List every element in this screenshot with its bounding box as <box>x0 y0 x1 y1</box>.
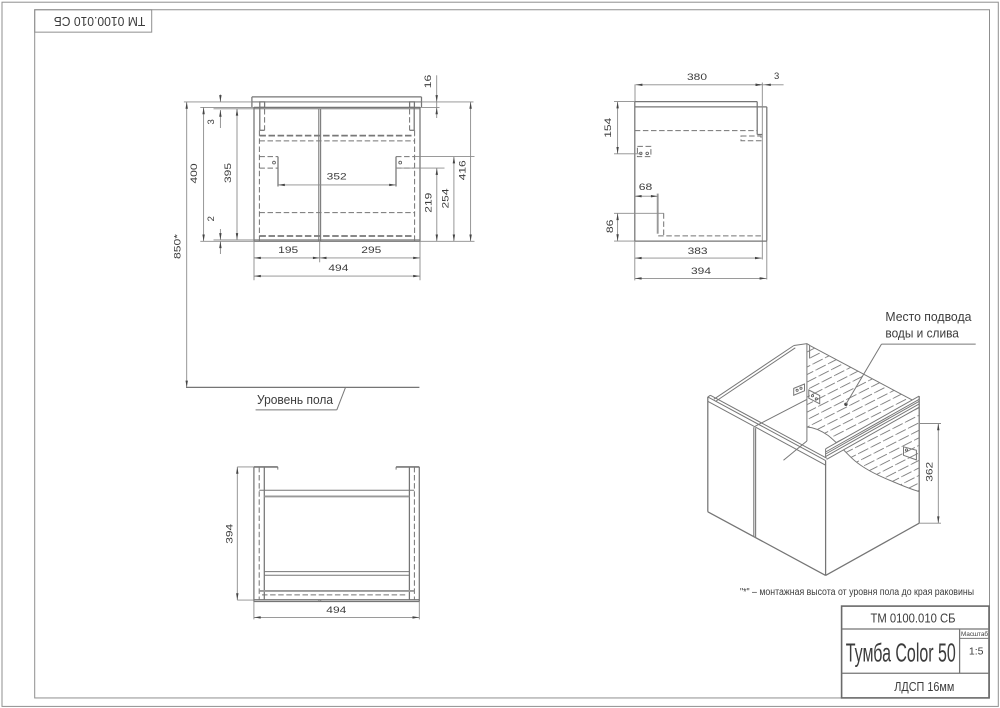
svg-text:86: 86 <box>605 220 616 234</box>
svg-text:ТМ 0100.010 СБ: ТМ 0100.010 СБ <box>54 14 146 28</box>
svg-text:Масштаб: Масштаб <box>961 630 988 638</box>
svg-text:494: 494 <box>326 605 346 616</box>
svg-text:850*: 850* <box>172 234 183 259</box>
svg-text:1:5: 1:5 <box>969 645 984 657</box>
svg-text:Тумба Color 50: Тумба Color 50 <box>846 638 956 668</box>
svg-text:494: 494 <box>328 263 348 274</box>
svg-text:219: 219 <box>424 193 435 213</box>
svg-text:ЛДСП 16мм: ЛДСП 16мм <box>894 679 954 694</box>
svg-text:Уровень пола: Уровень пола <box>257 392 334 407</box>
svg-text:ТМ 0100.010 СБ: ТМ 0100.010 СБ <box>871 611 956 625</box>
svg-text:16: 16 <box>423 75 434 89</box>
svg-text:395: 395 <box>223 163 234 183</box>
svg-text:383: 383 <box>688 246 708 257</box>
svg-text:3: 3 <box>206 119 217 124</box>
svg-text:Место подвода: Место подвода <box>885 309 972 324</box>
svg-text:380: 380 <box>687 72 707 83</box>
svg-text:400: 400 <box>189 164 200 184</box>
svg-text:"*" – монтажная высота от уров: "*" – монтажная высота от уровня пола до… <box>740 587 974 598</box>
svg-text:воды и слива: воды и слива <box>885 326 959 341</box>
svg-text:394: 394 <box>225 524 236 544</box>
svg-text:195: 195 <box>278 245 298 256</box>
svg-text:295: 295 <box>361 245 381 256</box>
svg-text:416: 416 <box>457 160 468 180</box>
svg-text:254: 254 <box>440 189 451 209</box>
svg-text:68: 68 <box>639 182 653 193</box>
svg-text:352: 352 <box>327 171 347 182</box>
svg-text:2: 2 <box>206 216 217 221</box>
svg-text:154: 154 <box>603 118 614 138</box>
svg-text:3: 3 <box>774 71 779 82</box>
svg-text:394: 394 <box>691 266 711 277</box>
svg-text:362: 362 <box>924 462 935 482</box>
